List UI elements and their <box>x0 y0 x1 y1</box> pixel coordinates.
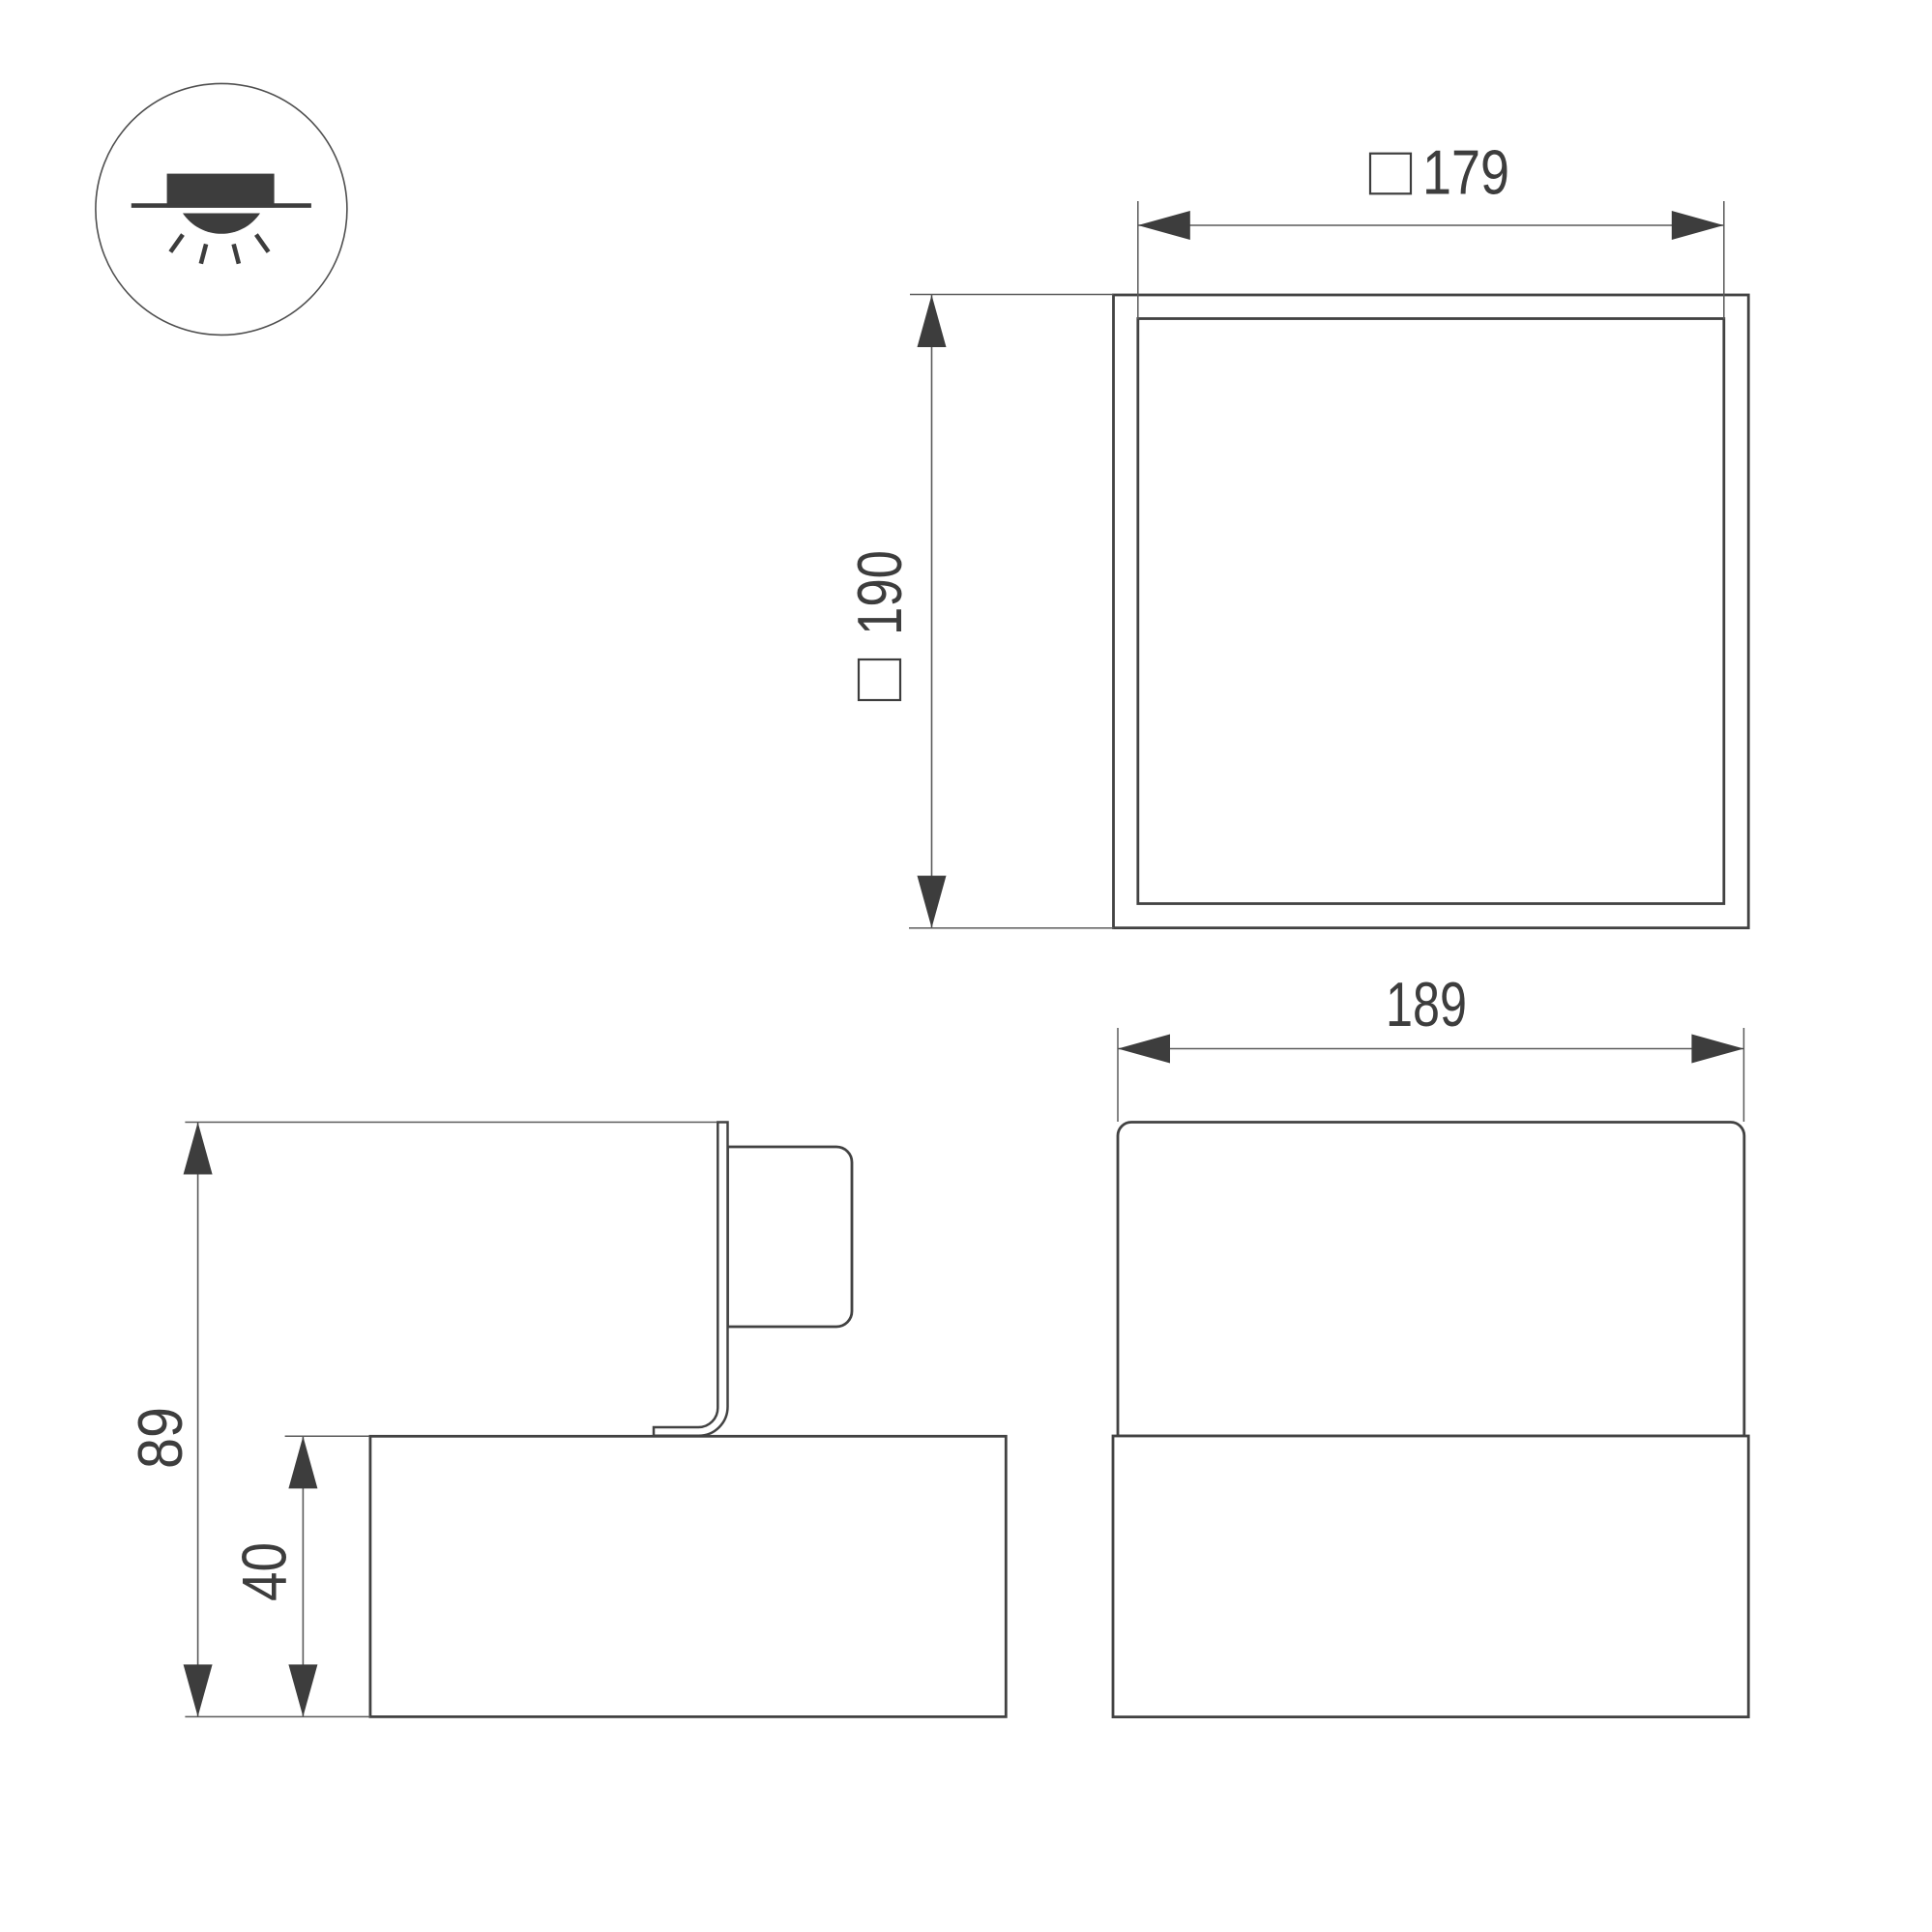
svg-text:179: 179 <box>1422 137 1509 208</box>
svg-text:190: 190 <box>844 550 915 635</box>
svg-text:189: 189 <box>1386 969 1467 1039</box>
svg-text:40: 40 <box>229 1542 300 1601</box>
svg-text:89: 89 <box>125 1407 195 1469</box>
